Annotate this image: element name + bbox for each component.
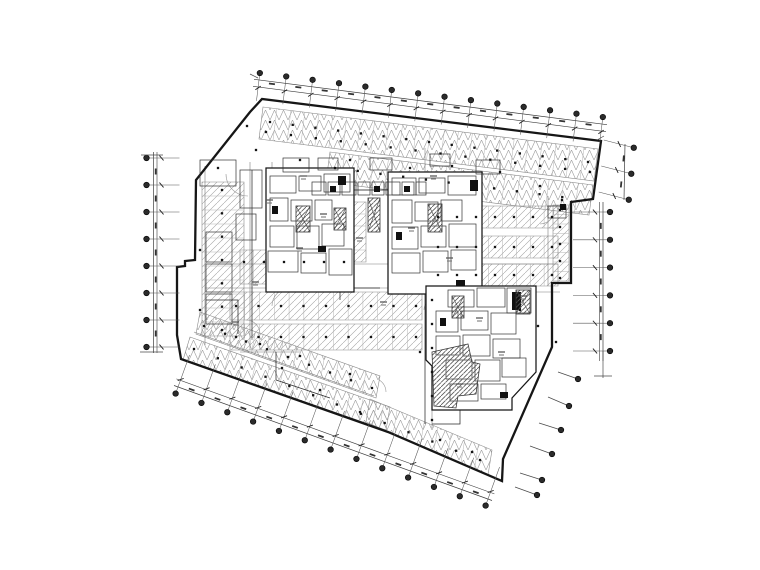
grid-bubble xyxy=(144,236,150,242)
fixture-dot xyxy=(532,246,534,248)
grid-bubble xyxy=(600,114,606,120)
callout-bubble xyxy=(549,451,555,457)
fixture-dot xyxy=(555,341,557,343)
fixture-dot xyxy=(479,459,481,461)
grid-bubble xyxy=(336,80,342,86)
grid-bubble xyxy=(521,104,527,110)
grid-bubble xyxy=(379,465,385,471)
fixture-dot xyxy=(283,261,285,263)
fixture-dot xyxy=(475,216,477,218)
fixture-dot xyxy=(494,216,496,218)
fixture-dot xyxy=(431,395,433,397)
grid-bubble xyxy=(354,456,360,462)
fixture-dot xyxy=(561,196,563,198)
equipment-fill-rect xyxy=(404,186,410,192)
grid-bubble xyxy=(405,475,411,481)
fixture-dot xyxy=(519,309,521,311)
dim-text-mark xyxy=(559,121,565,122)
grid-bubble xyxy=(442,94,448,100)
shaft-x-box xyxy=(334,208,346,230)
equipment-fill-rect xyxy=(456,280,465,286)
fixture-dot xyxy=(288,385,290,387)
equipment-fill-rect xyxy=(500,392,508,398)
fixture-dot xyxy=(437,216,439,218)
grid-bubble xyxy=(495,101,501,107)
grid-bubble xyxy=(173,391,179,397)
fixture-dot xyxy=(371,387,373,389)
fixture-dot xyxy=(532,216,534,218)
fixture-dot xyxy=(312,394,314,396)
fixture-dot xyxy=(221,236,223,238)
fixture-dot xyxy=(199,309,201,311)
dim-text-mark xyxy=(348,94,354,95)
fixture-dot xyxy=(245,340,247,342)
fixture-dot xyxy=(414,149,416,151)
dim-text-mark xyxy=(322,90,328,91)
fixture-dot xyxy=(280,305,282,307)
fixture-dot xyxy=(221,189,223,191)
grid-bubble xyxy=(607,209,613,215)
grid-bubble xyxy=(389,87,395,93)
equipment-fill-rect xyxy=(440,318,446,326)
fixture-dot xyxy=(292,124,294,126)
fixture-dot xyxy=(455,450,457,452)
fixture-dot xyxy=(439,439,441,441)
fixture-dot xyxy=(559,226,561,228)
equipment-fill-rect xyxy=(272,206,278,214)
fixture-dot xyxy=(343,261,345,263)
shaft-x-box xyxy=(296,206,310,232)
fixture-dot xyxy=(519,152,521,154)
dim-text-mark xyxy=(623,155,624,161)
fixture-dot xyxy=(323,261,325,263)
grid-bubble xyxy=(283,74,289,80)
dim-text-mark xyxy=(454,107,460,108)
grid-bubble xyxy=(144,263,150,269)
fixture-dot xyxy=(538,193,540,195)
fixture-dot xyxy=(513,216,515,218)
fixture-dot xyxy=(334,167,336,169)
fixture-dot xyxy=(499,171,501,173)
fixture-dot xyxy=(456,216,458,218)
background xyxy=(0,0,760,570)
fixture-dot xyxy=(319,389,321,391)
fixture-dot xyxy=(221,282,223,284)
grid-bubble xyxy=(628,171,634,177)
fixture-dot xyxy=(437,274,439,276)
fixture-dot xyxy=(281,367,283,369)
fixture-dot xyxy=(539,185,541,187)
fixture-dot xyxy=(473,147,475,149)
grid-bubble xyxy=(626,197,632,203)
shaft-x-box xyxy=(452,296,464,318)
equipment-fill-rect xyxy=(318,246,326,252)
fixture-dot xyxy=(493,187,495,189)
grid-bubble xyxy=(415,91,421,97)
fixture-dot xyxy=(425,178,427,180)
fixture-dot xyxy=(431,323,433,325)
fixture-dot xyxy=(439,152,441,154)
fixture-dot xyxy=(451,144,453,146)
callout-bubble xyxy=(566,403,572,409)
fixture-dot xyxy=(257,305,259,307)
fixture-dot xyxy=(513,246,515,248)
fixture-dot xyxy=(415,305,417,307)
equipment-fill-rect xyxy=(374,186,380,192)
grid-bubble xyxy=(199,400,205,406)
fixture-dot xyxy=(370,305,372,307)
fixture-dot xyxy=(389,146,391,148)
floor-plan-svg xyxy=(0,0,760,570)
grid-bubble xyxy=(144,182,150,188)
grid-bubble xyxy=(328,447,334,453)
fixture-dot xyxy=(314,127,316,129)
fixture-dot xyxy=(392,336,394,338)
fixture-dot xyxy=(357,170,359,172)
equipment-fill-rect xyxy=(330,186,336,192)
fixture-dot xyxy=(537,325,539,327)
equipment-fill-rect xyxy=(338,176,346,185)
shaft-x-box xyxy=(516,290,530,314)
fixture-dot xyxy=(451,165,453,167)
fixture-dot xyxy=(280,336,282,338)
fixture-dot xyxy=(431,371,433,373)
drawing-sheet xyxy=(0,0,760,570)
fixture-dot xyxy=(308,364,310,366)
fixture-dot xyxy=(431,419,433,421)
callout-bubble xyxy=(558,427,564,433)
grid-bubble xyxy=(457,493,463,499)
fixture-dot xyxy=(217,357,219,359)
fixture-dot xyxy=(379,173,381,175)
grid-bubble xyxy=(607,293,613,299)
fixture-dot xyxy=(407,431,409,433)
dim-text-mark xyxy=(427,104,433,105)
fixture-dot xyxy=(329,371,331,373)
grid-bubble xyxy=(144,209,150,215)
fixture-dot xyxy=(415,336,417,338)
fixture-dot xyxy=(471,451,473,453)
fixture-dot xyxy=(409,167,411,169)
shaft-x-box xyxy=(368,198,380,232)
grid-bubble xyxy=(431,484,437,490)
fixture-dot xyxy=(217,167,219,169)
fixture-dot xyxy=(299,159,301,161)
fixture-dot xyxy=(384,422,386,424)
fixture-dot xyxy=(475,274,477,276)
fixture-dot xyxy=(224,333,226,335)
grid-bubble xyxy=(547,107,553,113)
grid-bubble xyxy=(631,145,637,151)
fixture-dot xyxy=(336,403,338,405)
fixture-dot xyxy=(221,329,223,331)
fixture-dot xyxy=(199,249,201,251)
fixture-dot xyxy=(464,155,466,157)
fixture-dot xyxy=(561,199,563,201)
fixture-dot xyxy=(265,131,267,133)
fixture-dot xyxy=(337,129,339,131)
fixture-dot xyxy=(370,336,372,338)
fixture-dot xyxy=(203,325,205,327)
fixture-dot xyxy=(437,246,439,248)
dim-text-mark xyxy=(586,124,592,125)
grid-bubble xyxy=(276,428,282,434)
fixture-dot xyxy=(431,440,433,442)
fixture-dot xyxy=(259,343,261,345)
fixture-dot xyxy=(382,135,384,137)
dim-text-mark xyxy=(621,181,622,187)
fixture-dot xyxy=(325,336,327,338)
fixture-dot xyxy=(243,261,245,263)
fixture-dot xyxy=(349,373,351,375)
fixture-dot xyxy=(302,305,304,307)
fixture-dot xyxy=(489,159,491,161)
fixture-dot xyxy=(405,138,407,140)
dim-text-mark xyxy=(506,114,512,115)
fixture-dot xyxy=(428,141,430,143)
grid-bubble xyxy=(144,344,150,350)
fixture-dot xyxy=(350,379,352,381)
grid-bubble xyxy=(310,77,316,83)
fixture-dot xyxy=(303,261,305,263)
fixture-dot xyxy=(264,376,266,378)
grid-bubble xyxy=(302,437,308,443)
fixture-dot xyxy=(419,351,421,353)
grid-bubble xyxy=(257,70,263,76)
fixture-dot xyxy=(302,336,304,338)
fixture-dot xyxy=(257,336,259,338)
fixture-dot xyxy=(587,161,589,163)
grid-bubble xyxy=(144,155,150,161)
fixture-dot xyxy=(559,243,561,245)
fixture-dot xyxy=(559,277,561,279)
grid-bubble xyxy=(144,317,150,323)
fixture-dot xyxy=(494,246,496,248)
fixture-dot xyxy=(475,246,477,248)
fixture-dot xyxy=(193,348,195,350)
grid-bubble xyxy=(607,320,613,326)
fixture-dot xyxy=(456,274,458,276)
fixture-dot xyxy=(447,181,449,183)
fixture-dot xyxy=(494,274,496,276)
grid-bubble xyxy=(144,290,150,296)
shaft-x-box xyxy=(428,204,442,232)
fixture-dot xyxy=(584,199,586,201)
fixture-dot xyxy=(347,336,349,338)
dim-text-mark xyxy=(480,111,486,112)
fixture-dot xyxy=(241,366,243,368)
dim-text-mark xyxy=(401,100,407,101)
dim-text-mark xyxy=(533,117,539,118)
fixture-dot xyxy=(551,274,553,276)
fixture-dot xyxy=(359,411,361,413)
fixture-dot xyxy=(287,356,289,358)
dim-text-mark xyxy=(374,97,380,98)
fixture-dot xyxy=(360,132,362,134)
fixture-dot xyxy=(456,246,458,248)
fixture-dot xyxy=(513,274,515,276)
grid-bubble xyxy=(574,111,580,117)
grid-bubble xyxy=(250,419,256,425)
fixture-dot xyxy=(551,216,553,218)
fixture-dot xyxy=(235,336,237,338)
fixture-dot xyxy=(221,212,223,214)
fixture-dot xyxy=(365,143,367,145)
fixture-dot xyxy=(340,140,342,142)
fixture-dot xyxy=(315,137,317,139)
fixture-dot xyxy=(431,299,433,301)
fixture-dot xyxy=(263,261,265,263)
fixture-dot xyxy=(431,347,433,349)
fixture-dot xyxy=(402,176,404,178)
fixture-dot xyxy=(496,149,498,151)
fixture-dot xyxy=(347,305,349,307)
fixture-dot xyxy=(514,162,516,164)
fixture-dot xyxy=(349,159,351,161)
fixture-dot xyxy=(269,121,271,123)
grid-bubble xyxy=(483,503,489,509)
fixture-dot xyxy=(392,305,394,307)
fixture-dot xyxy=(541,155,543,157)
grid-bubble xyxy=(468,97,474,103)
fixture-dot xyxy=(235,305,237,307)
grid-bubble xyxy=(224,409,230,415)
fixture-dot xyxy=(564,168,566,170)
fixture-dot xyxy=(532,274,534,276)
grid-bubble xyxy=(607,348,613,354)
fixture-dot xyxy=(221,259,223,261)
fixture-dot xyxy=(221,306,223,308)
grid-bubble xyxy=(607,237,613,243)
fixture-dot xyxy=(559,260,561,262)
fixture-dot xyxy=(564,158,566,160)
equipment-fill-rect xyxy=(396,232,402,240)
grid-bubble xyxy=(363,84,369,90)
fixture-dot xyxy=(255,149,257,151)
fixture-dot xyxy=(516,190,518,192)
fixture-dot xyxy=(559,209,561,211)
fixture-dot xyxy=(290,134,292,136)
fixture-dot xyxy=(266,348,268,350)
fixture-dot xyxy=(246,125,248,127)
fixture-dot xyxy=(470,184,472,186)
fixture-dot xyxy=(539,165,541,167)
fixture-dot xyxy=(551,246,553,248)
callout-bubble xyxy=(575,376,581,382)
dim-text-mark xyxy=(295,87,301,88)
callout-bubble xyxy=(534,492,540,498)
grid-bubble xyxy=(607,265,613,271)
fixture-dot xyxy=(325,305,327,307)
callout-bubble xyxy=(539,477,545,483)
fixture-dot xyxy=(299,355,301,357)
dim-text-mark xyxy=(269,83,275,84)
fixture-dot xyxy=(589,171,591,173)
